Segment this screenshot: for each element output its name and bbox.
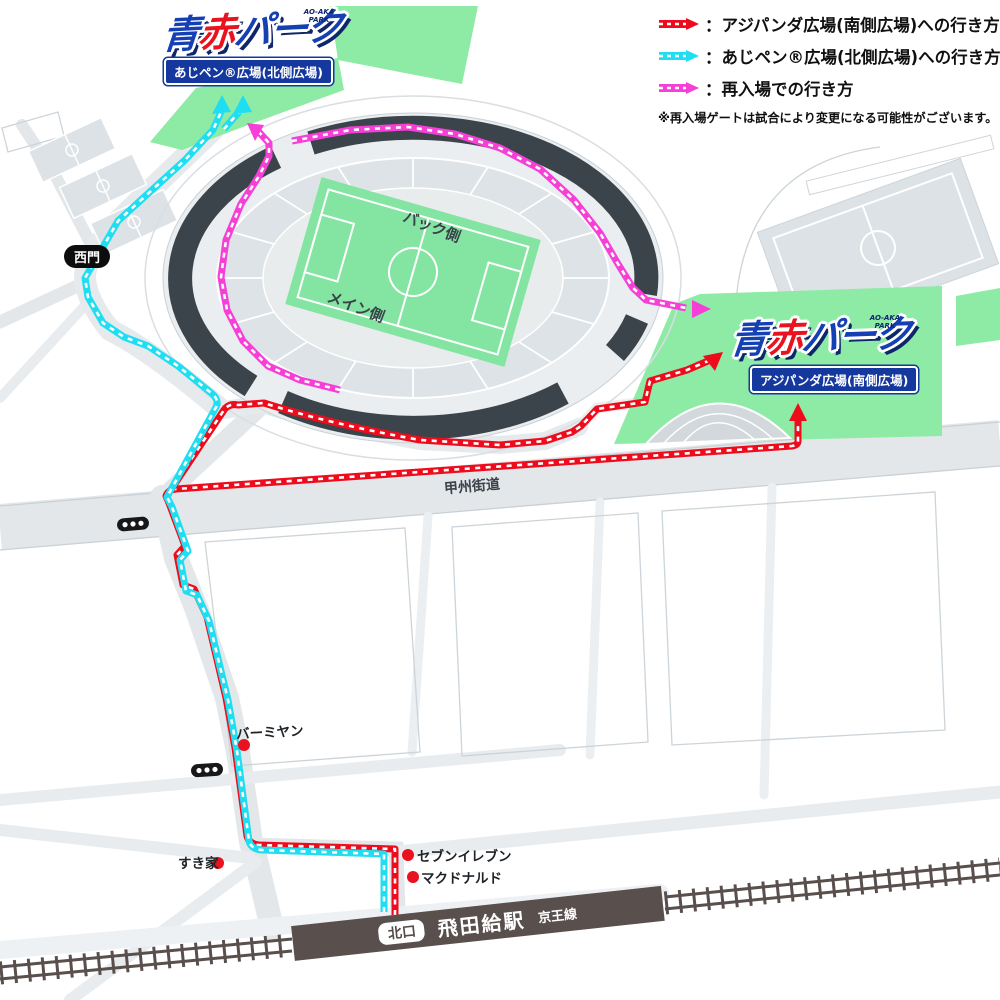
traffic-light-icon: [191, 762, 224, 777]
north-plaza-upper: [330, 6, 478, 84]
station-name: 飛田給駅: [436, 904, 527, 942]
west-gate-badge: 西門: [64, 245, 110, 268]
cyan-dashed-arrow-icon: [658, 49, 700, 63]
red-dashed-arrow-icon: [658, 17, 700, 31]
aoaka-park-logo-subtitle: AO-AKA PARK: [302, 8, 336, 24]
legend: ：アジパンダ広場(南側広場)への行き方 ：あじペン®広場(北側広場)への行き方 …: [658, 12, 1000, 126]
north-plaza-label: あじペン®広場(北側広場): [164, 58, 333, 85]
aoaka-park-logo-subtitle: AO-AKA PARK: [868, 314, 902, 330]
page: ：アジパンダ広場(南側広場)への行き方 ：あじペン®広場(北側広場)への行き方 …: [0, 0, 1000, 1000]
dot-mcdonalds: [407, 871, 419, 883]
landmark-label-sukiya: すき家: [178, 852, 219, 872]
landmark-label-bamiyan: バーミヤン: [236, 719, 304, 743]
north-exit-badge: 北口: [378, 918, 426, 945]
landmark-label-seven-eleven: セブンイレブン: [417, 845, 512, 865]
legend-row-reentry: ：再入場での行き方: [658, 76, 1000, 100]
magenta-dashed-arrow-icon: [658, 81, 700, 95]
south-plaza: [614, 286, 942, 444]
dot-seven-eleven: [402, 849, 414, 861]
south-plaza-label: アジパンダ広場(南側広場): [750, 366, 918, 393]
legend-label-reentry: ：再入場での行き方: [705, 76, 854, 100]
legend-note: ※再入場ゲートは試合により変更になる可能性がございます。: [658, 108, 1000, 126]
railway-ties-right: [665, 869, 1000, 903]
landmark-label-mcdonalds: マクドナルド: [421, 867, 502, 887]
station-line: 京王線: [537, 903, 578, 926]
legend-row-south: ：アジパンダ広場(南側広場)への行き方: [658, 12, 1000, 36]
legend-label-south: ：アジパンダ広場(南側広場)への行き方: [705, 12, 1000, 36]
south-plaza-east: [956, 288, 1000, 346]
legend-row-north: ：あじペン®広場(北側広場)への行き方: [658, 44, 1000, 68]
legend-label-north: ：あじペン®広場(北側広場)への行き方: [705, 44, 1000, 68]
